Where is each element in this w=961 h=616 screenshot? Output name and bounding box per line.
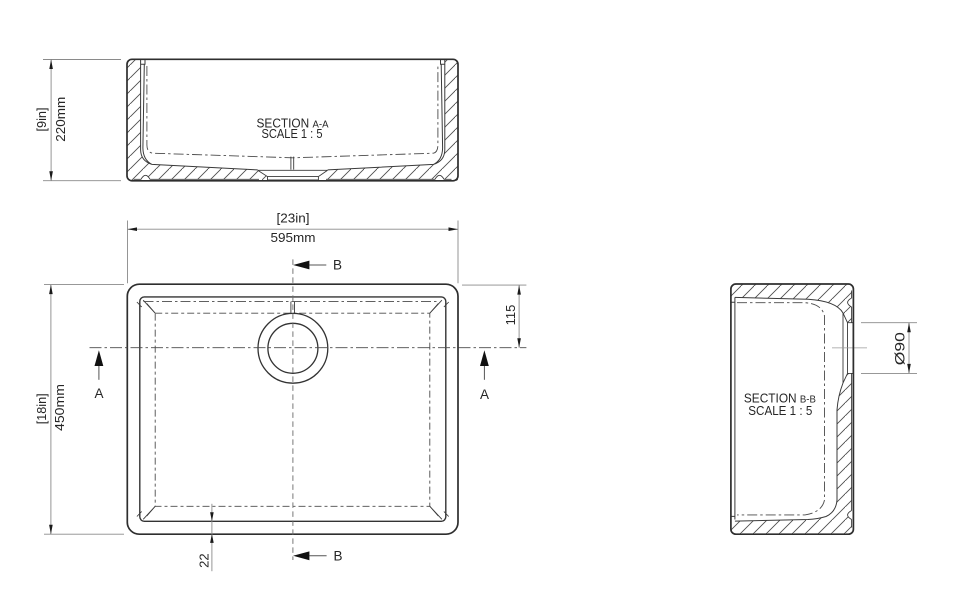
svg-text:Ø90: Ø90 [893,332,908,365]
svg-text:B: B [333,548,342,563]
svg-text:A: A [480,387,489,402]
svg-text:A: A [94,386,103,401]
svg-text:220mm: 220mm [53,97,68,142]
svg-text:SCALE 1 : 5: SCALE 1 : 5 [262,126,323,141]
svg-text:SCALE 1 : 5: SCALE 1 : 5 [748,403,812,418]
svg-text:[18in]: [18in] [34,393,49,424]
svg-text:B: B [333,257,342,272]
svg-text:[23in]: [23in] [277,211,310,226]
svg-text:595mm: 595mm [271,230,316,245]
svg-text:[9in]: [9in] [34,108,49,132]
svg-text:450mm: 450mm [52,384,67,431]
svg-text:115: 115 [503,305,518,326]
svg-text:22: 22 [197,553,212,567]
